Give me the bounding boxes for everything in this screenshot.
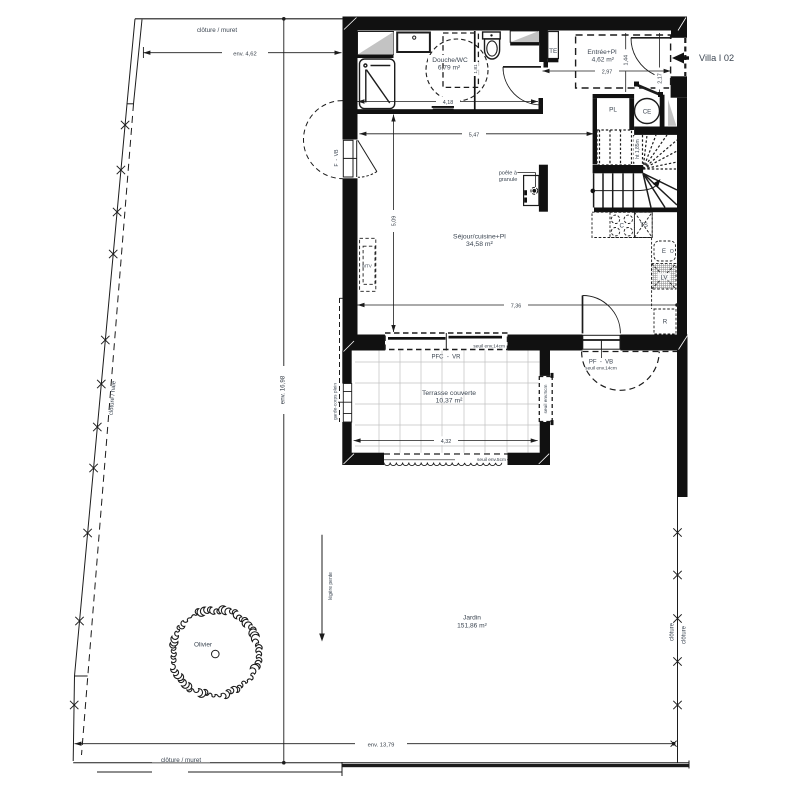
svg-text:Olivier: Olivier (194, 642, 213, 649)
svg-text:env. 13,79: env. 13,79 (368, 743, 395, 749)
svg-text:R: R (663, 319, 668, 326)
svg-text:E: E (662, 248, 666, 255)
svg-text:MTV: MTV (362, 264, 373, 269)
svg-text:PF - VB: PF - VB (589, 360, 613, 366)
svg-text:env. 4,62: env. 4,62 (233, 52, 256, 58)
svg-text:34,58 m²: 34,58 m² (466, 241, 494, 248)
svg-text:ht 1,85m: ht 1,85m (635, 139, 641, 158)
svg-text:env. 16,98: env. 16,98 (280, 375, 287, 404)
svg-text:4,18: 4,18 (443, 100, 454, 106)
svg-text:Séjour/cuisine+Pl: Séjour/cuisine+Pl (453, 234, 506, 241)
svg-text:F - VB: F - VB (334, 149, 340, 167)
svg-text:garde-corps plein: garde-corps plein (333, 383, 339, 420)
svg-text:Terrasse couverte: Terrasse couverte (422, 390, 476, 397)
svg-text:Jardin: Jardin (463, 615, 481, 622)
svg-text:clôture / muret: clôture / muret (161, 757, 201, 764)
svg-text:Douche/WC: Douche/WC (432, 57, 468, 64)
svg-text:seuil env.14cm: seuil env.14cm (585, 366, 617, 372)
svg-text:seuil env.5cm: seuil env.5cm (477, 457, 506, 463)
svg-text:clôture / muret: clôture / muret (197, 27, 237, 34)
svg-text:seuil env.14cm: seuil env.14cm (473, 344, 505, 350)
svg-text:TE: TE (549, 48, 557, 55)
svg-text:2,97: 2,97 (602, 70, 613, 76)
svg-text:légère pente: légère pente (328, 572, 334, 600)
svg-text:poêle à: poêle à (499, 171, 518, 177)
svg-text:10,37 m²: 10,37 m² (436, 398, 464, 405)
svg-text:granule: granule (499, 177, 518, 183)
svg-text:7,36: 7,36 (511, 304, 522, 310)
svg-text:PL: PL (609, 107, 617, 114)
svg-text:4,32: 4,32 (441, 439, 452, 445)
svg-text:1,81: 1,81 (473, 64, 479, 74)
svg-text:TS: TS (640, 222, 648, 229)
svg-text:5,47: 5,47 (469, 132, 480, 138)
svg-text:PFC - VR: PFC - VR (431, 355, 461, 361)
svg-text:151,86 m²: 151,86 m² (457, 623, 487, 630)
svg-text:1,44: 1,44 (624, 55, 630, 66)
svg-text:5,09: 5,09 (391, 216, 397, 227)
svg-text:LV: LV (660, 275, 668, 282)
svg-text:6,79 m²: 6,79 m² (438, 65, 461, 72)
svg-text:seuil env.5cm: seuil env.5cm (543, 385, 549, 414)
svg-text:O: O (670, 249, 674, 255)
svg-text:Entrée+Pl: Entrée+Pl (587, 49, 617, 56)
svg-text:Villa I 02: Villa I 02 (699, 53, 734, 63)
svg-text:CE: CE (643, 109, 652, 116)
svg-text:C: C (619, 223, 624, 230)
svg-text:clôture: clôture (682, 625, 688, 644)
svg-text:4,62 m²: 4,62 m² (592, 57, 615, 64)
svg-text:2,17: 2,17 (657, 73, 663, 84)
svg-text:clôture: clôture (670, 622, 676, 641)
